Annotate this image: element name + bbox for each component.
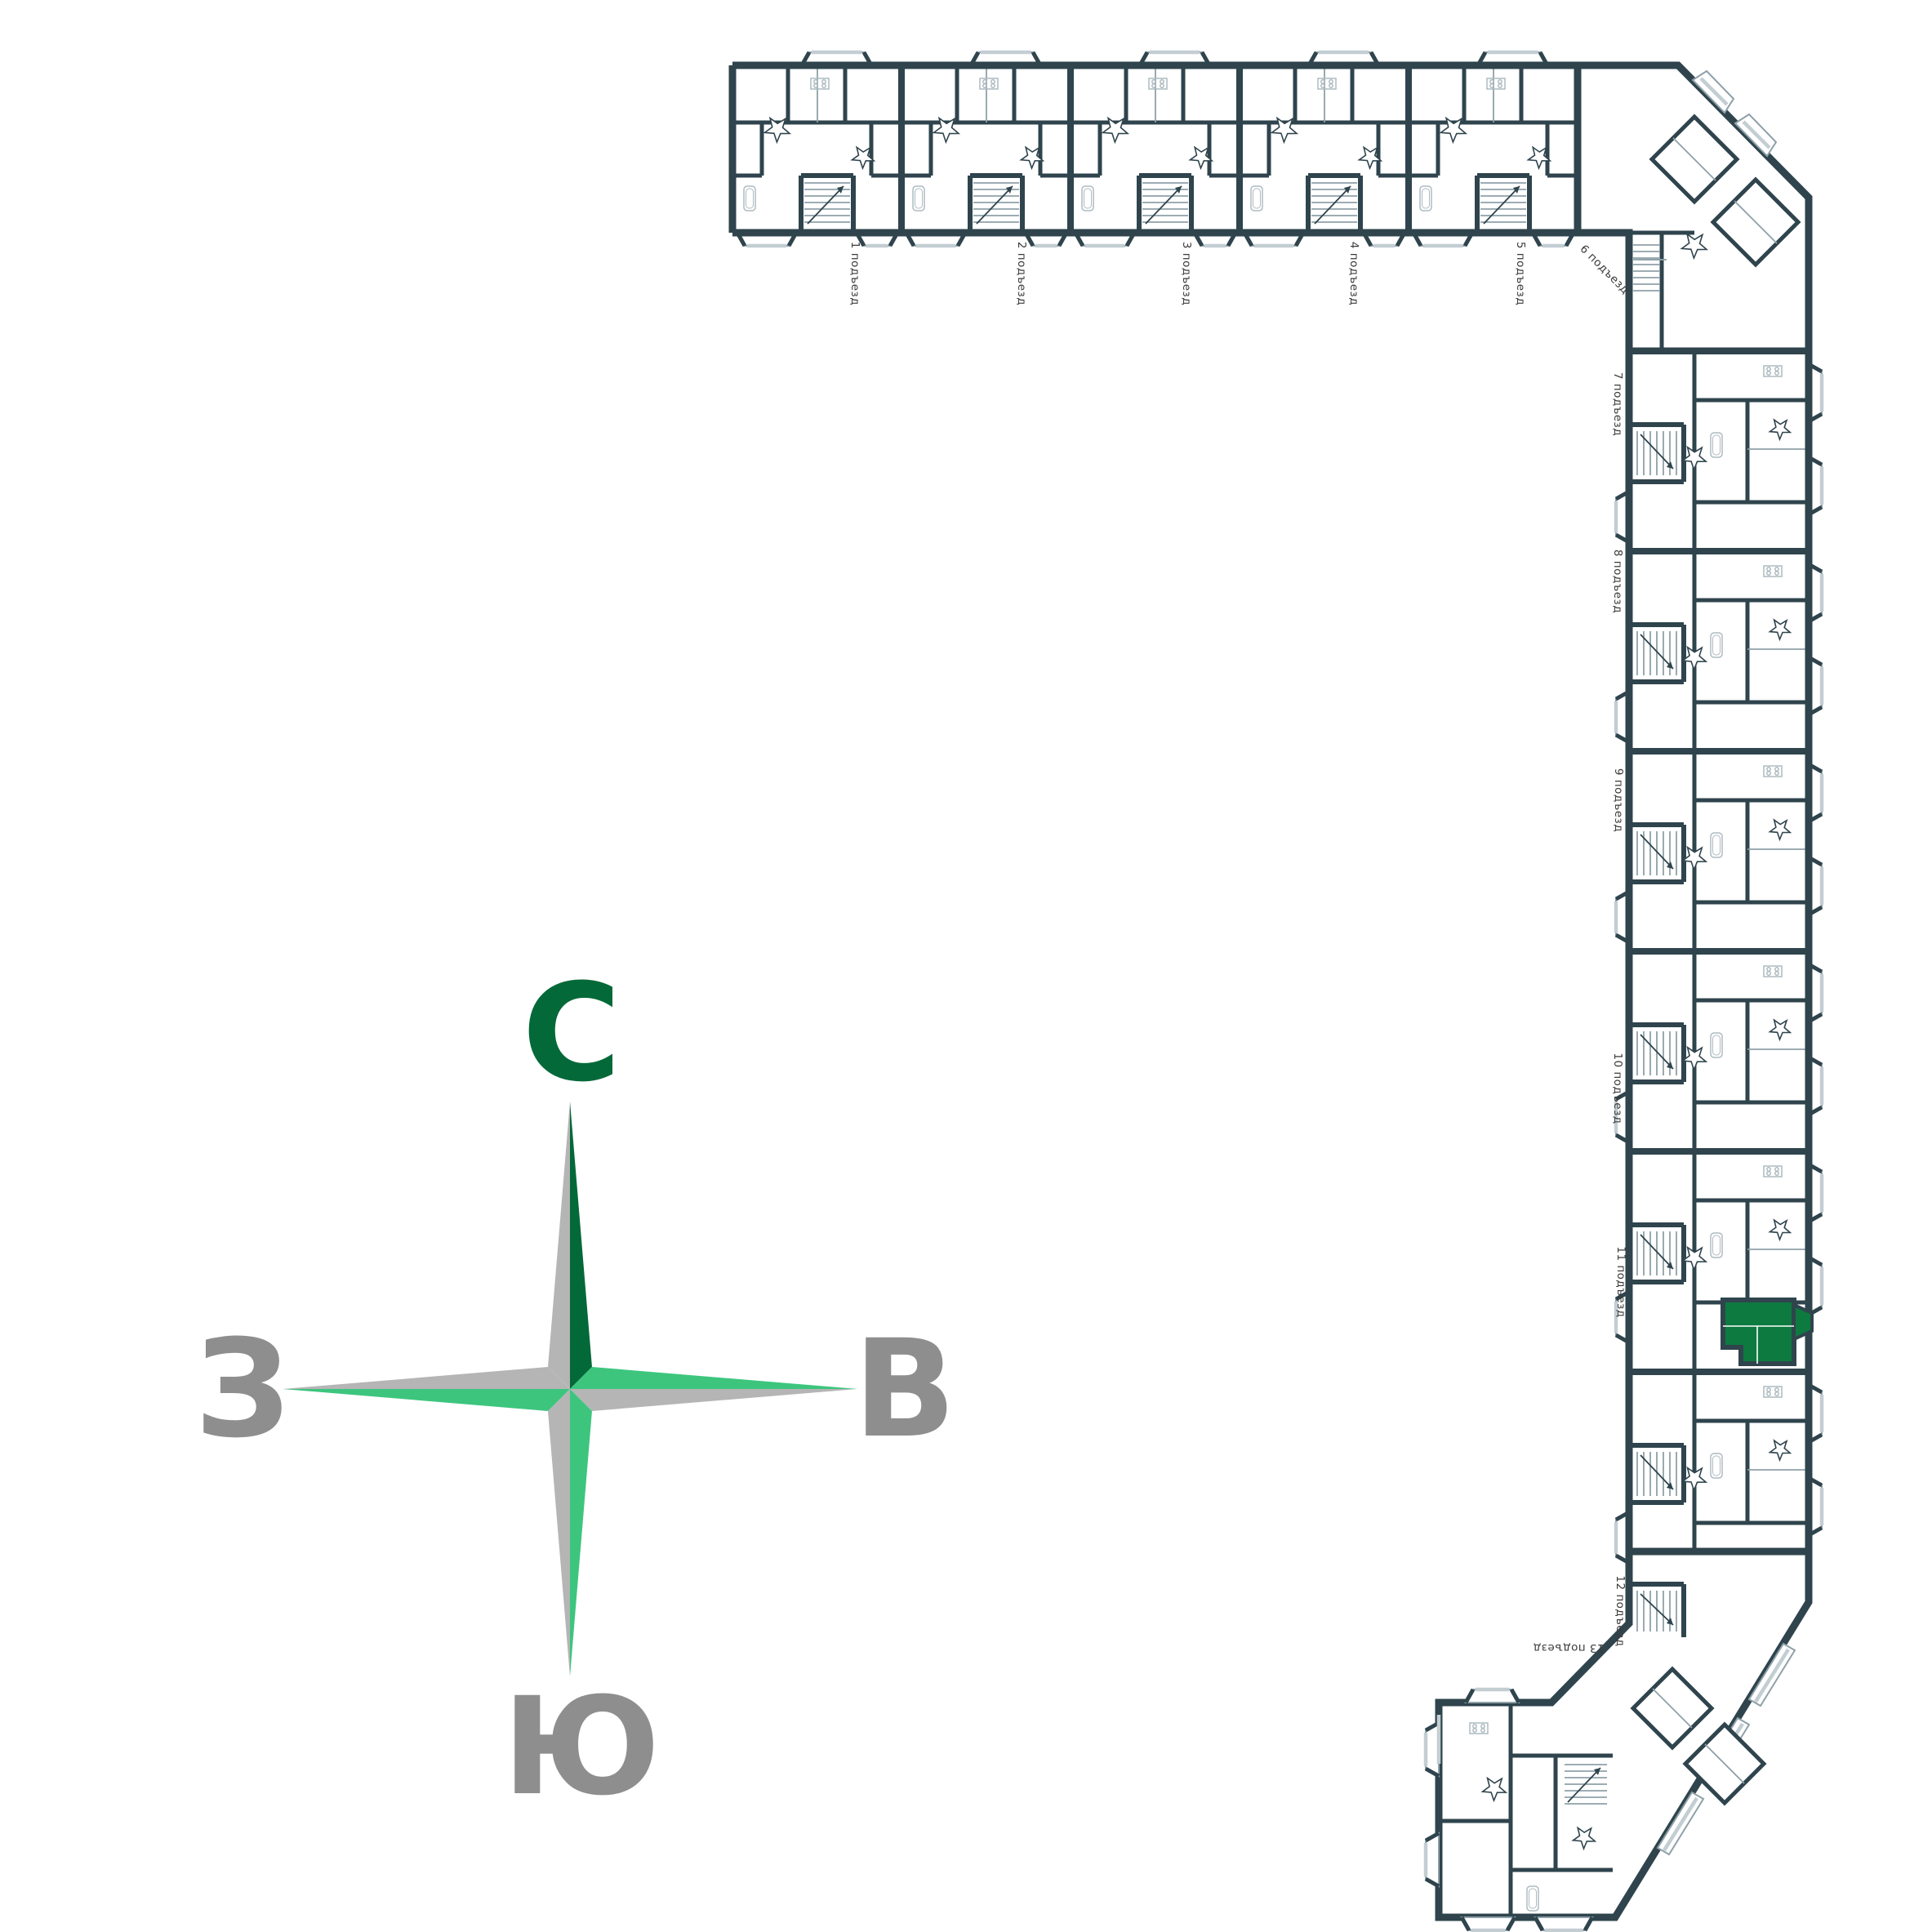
- compass-west-bottom: [283, 1389, 570, 1411]
- entrance-label-2: 2 подъезд: [1015, 242, 1028, 305]
- entrance-label-8: 8 подъезд: [1611, 550, 1624, 613]
- entrance-section-6: [1578, 65, 1809, 351]
- entrance-label-13: 13 подъезд: [1533, 1641, 1604, 1654]
- entrance-label-10: 10 подъезд: [1611, 1053, 1624, 1124]
- compass-east-letter: В: [853, 1311, 956, 1467]
- entrance-label-1: 1 подъезд: [848, 242, 861, 305]
- entrance-label-5: 5 подъезд: [1514, 242, 1527, 305]
- floor-plan-page: 1 подъезд2 подъезд3 подъезд4 подъезд5 по…: [0, 0, 1932, 1932]
- building-floor-plan: 1 подъезд2 подъезд3 подъезд4 подъезд5 по…: [0, 0, 1932, 1932]
- compass-east-top: [570, 1367, 857, 1389]
- entrance-label-6: 6 подъезд: [1578, 243, 1632, 297]
- compass-west-top: [283, 1367, 570, 1389]
- compass-south-right: [570, 1389, 592, 1676]
- compass-rose: СВЗЮ: [194, 955, 956, 1825]
- entrance-label-11: 11 подъезд: [1614, 1246, 1627, 1317]
- entrance-label-7: 7 подъезд: [1611, 372, 1624, 436]
- entrance-label-3: 3 подъезд: [1180, 242, 1193, 305]
- entrance-label-9: 9 подъезд: [1612, 768, 1625, 832]
- compass-north-left: [548, 1102, 570, 1389]
- compass-north-right: [570, 1102, 592, 1389]
- compass-north-letter: С: [522, 955, 621, 1111]
- compass-west-letter: З: [194, 1311, 290, 1467]
- entrance-label-12: 12 подъезд: [1614, 1575, 1627, 1646]
- compass-south-letter: Ю: [502, 1668, 661, 1825]
- compass-east-bottom: [570, 1389, 857, 1411]
- compass-south-left: [548, 1389, 570, 1676]
- entrance-label-4: 4 подъезд: [1347, 242, 1360, 305]
